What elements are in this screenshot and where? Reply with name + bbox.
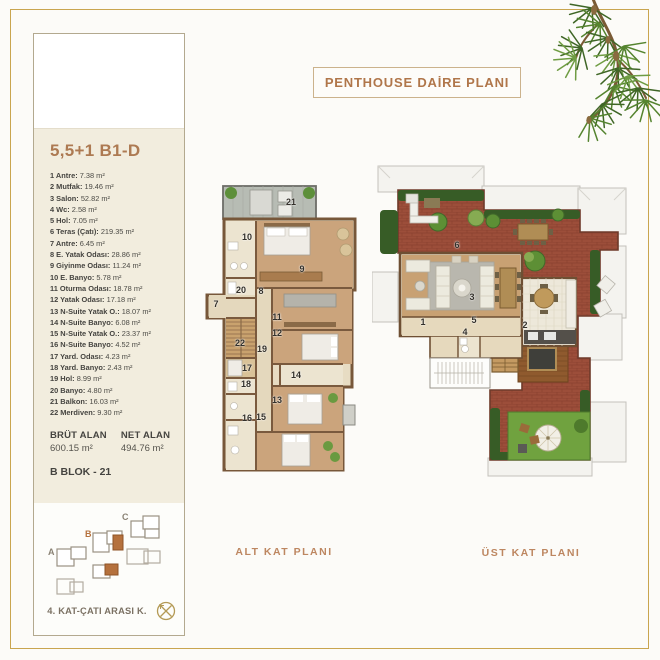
ust-kat-drawing [372, 158, 640, 480]
room-number: 12 [272, 328, 282, 338]
room-number: 10 [242, 232, 252, 242]
alt-kat-drawing [200, 182, 372, 474]
room-list: 1 Antre: 7.38 m² 2 Mutfak: 19.46 m² 3 Sa… [50, 170, 176, 419]
side-balcony [343, 405, 355, 425]
brut-area: BRÜT ALAN 600.15 m² [50, 430, 107, 454]
plant-icon [303, 187, 315, 199]
room-list-item: 2 Mutfak: 19.46 m² [50, 181, 176, 192]
net-area: NET ALAN 494.76 m² [121, 430, 170, 454]
block-c-label: C [122, 512, 129, 522]
room-list-item: 5 Hol: 7.05 m² [50, 215, 176, 226]
room-number: 1 [420, 317, 425, 327]
room-list-item: 4 Wc: 2.58 m² [50, 204, 176, 215]
pine-branch-decoration [530, 0, 660, 150]
room-number: 13 [272, 395, 282, 405]
site-plan-panel: C B A 4. KAT-ÇATI ARASI K. [33, 503, 185, 636]
room-number: 18 [241, 379, 251, 389]
room-list-item: 14 N-Suite Banyo: 6.08 m² [50, 317, 176, 328]
unit-type-title: 5,5+1 B1-D [50, 141, 176, 161]
block-east-shape [127, 549, 160, 564]
room-number: 17 [242, 363, 252, 373]
room-list-item: 19 Hol: 8.99 m² [50, 373, 176, 384]
lawn [508, 412, 590, 460]
room-list-item: 6 Teras (Çatı): 219.35 m² [50, 226, 176, 237]
room-list-item: 15 N-Suite Yatak O.: 23.37 m² [50, 328, 176, 339]
block-center-highlight [105, 564, 118, 575]
ust-kat-caption: ÜST KAT PLANI [482, 547, 581, 559]
room-number: 5 [471, 315, 476, 325]
block-south-shape [57, 579, 83, 594]
alt-kat-floor-plan: 21 10 9 20 8 7 11 12 22 19 17 14 18 13 1… [200, 182, 372, 474]
room-list-item: 8 E. Yatak Odası: 28.86 m² [50, 249, 176, 260]
site-plan-caption: 4. KAT-ÇATI ARASI K. [40, 606, 154, 616]
room-number: 21 [286, 197, 296, 207]
room-number: 2 [522, 320, 527, 330]
page-title: PENTHOUSE DAİRE PLANI [313, 67, 521, 98]
room-number: 9 [299, 264, 304, 274]
block-b-highlight [113, 535, 123, 550]
room-list-item: 12 Yatak Odası: 17.18 m² [50, 294, 176, 305]
room-list-item: 9 Giyinme Odası: 11.24 m² [50, 260, 176, 271]
room-list-item: 20 Banyo: 4.80 m² [50, 385, 176, 396]
room-list-item: 17 Yard. Odası: 4.23 m² [50, 351, 176, 362]
balcony-21 [223, 186, 316, 219]
room-number: 6 [454, 240, 459, 250]
plant-icon [225, 187, 237, 199]
umbrella-icon [535, 425, 561, 451]
room-number: 19 [257, 344, 267, 354]
room-number: 8 [258, 286, 263, 296]
room-list-item: 1 Antre: 7.38 m² [50, 170, 176, 181]
room-list-item: 3 Salon: 52.82 m² [50, 193, 176, 204]
ust-kat-floor-plan: 6 3 1 5 2 4 [372, 158, 640, 480]
room-number: 4 [462, 327, 467, 337]
room-list-item: 10 E. Banyo: 5.78 m² [50, 272, 176, 283]
block-c-shape [131, 516, 159, 538]
room-number: 20 [236, 285, 246, 295]
block-b-label: B [85, 529, 92, 539]
room-list-item: 13 N-Suite Yatak O.: 18.07 m² [50, 306, 176, 317]
area-summary: BRÜT ALAN 600.15 m² NET ALAN 494.76 m² [50, 430, 176, 454]
page-title-text: PENTHOUSE DAİRE PLANI [325, 75, 509, 90]
info-panel: 5,5+1 B1-D 1 Antre: 7.38 m² 2 Mutfak: 19… [33, 33, 185, 503]
room-number: 7 [213, 299, 218, 309]
block-a-label: A [48, 547, 55, 557]
block-a-shape [57, 547, 86, 566]
room-list-item: 16 N-Suite Banyo: 4.52 m² [50, 339, 176, 350]
compass-icon [158, 603, 175, 620]
room-list-item: 21 Balkon: 16.03 m² [50, 396, 176, 407]
alt-kat-caption: ALT KAT PLANI [235, 546, 332, 558]
room-list-item: 11 Oturma Odası: 18.78 m² [50, 283, 176, 294]
room-number: 11 [272, 312, 282, 322]
room-number: 16 [242, 413, 252, 423]
room-number: 14 [291, 370, 301, 380]
room-list-item: 18 Yard. Banyo: 2.43 m² [50, 362, 176, 373]
room-number: 3 [469, 292, 474, 302]
room-number: 15 [256, 412, 266, 422]
logo-area [34, 34, 184, 129]
room-number: 22 [235, 338, 245, 348]
unit-info: 5,5+1 B1-D 1 Antre: 7.38 m² 2 Mutfak: 19… [34, 129, 184, 503]
room-list-item: 22 Merdiven: 9.30 m² [50, 407, 176, 418]
room-list-item: 7 Antre: 6.45 m² [50, 238, 176, 249]
block-number: B BLOK - 21 [50, 466, 176, 478]
